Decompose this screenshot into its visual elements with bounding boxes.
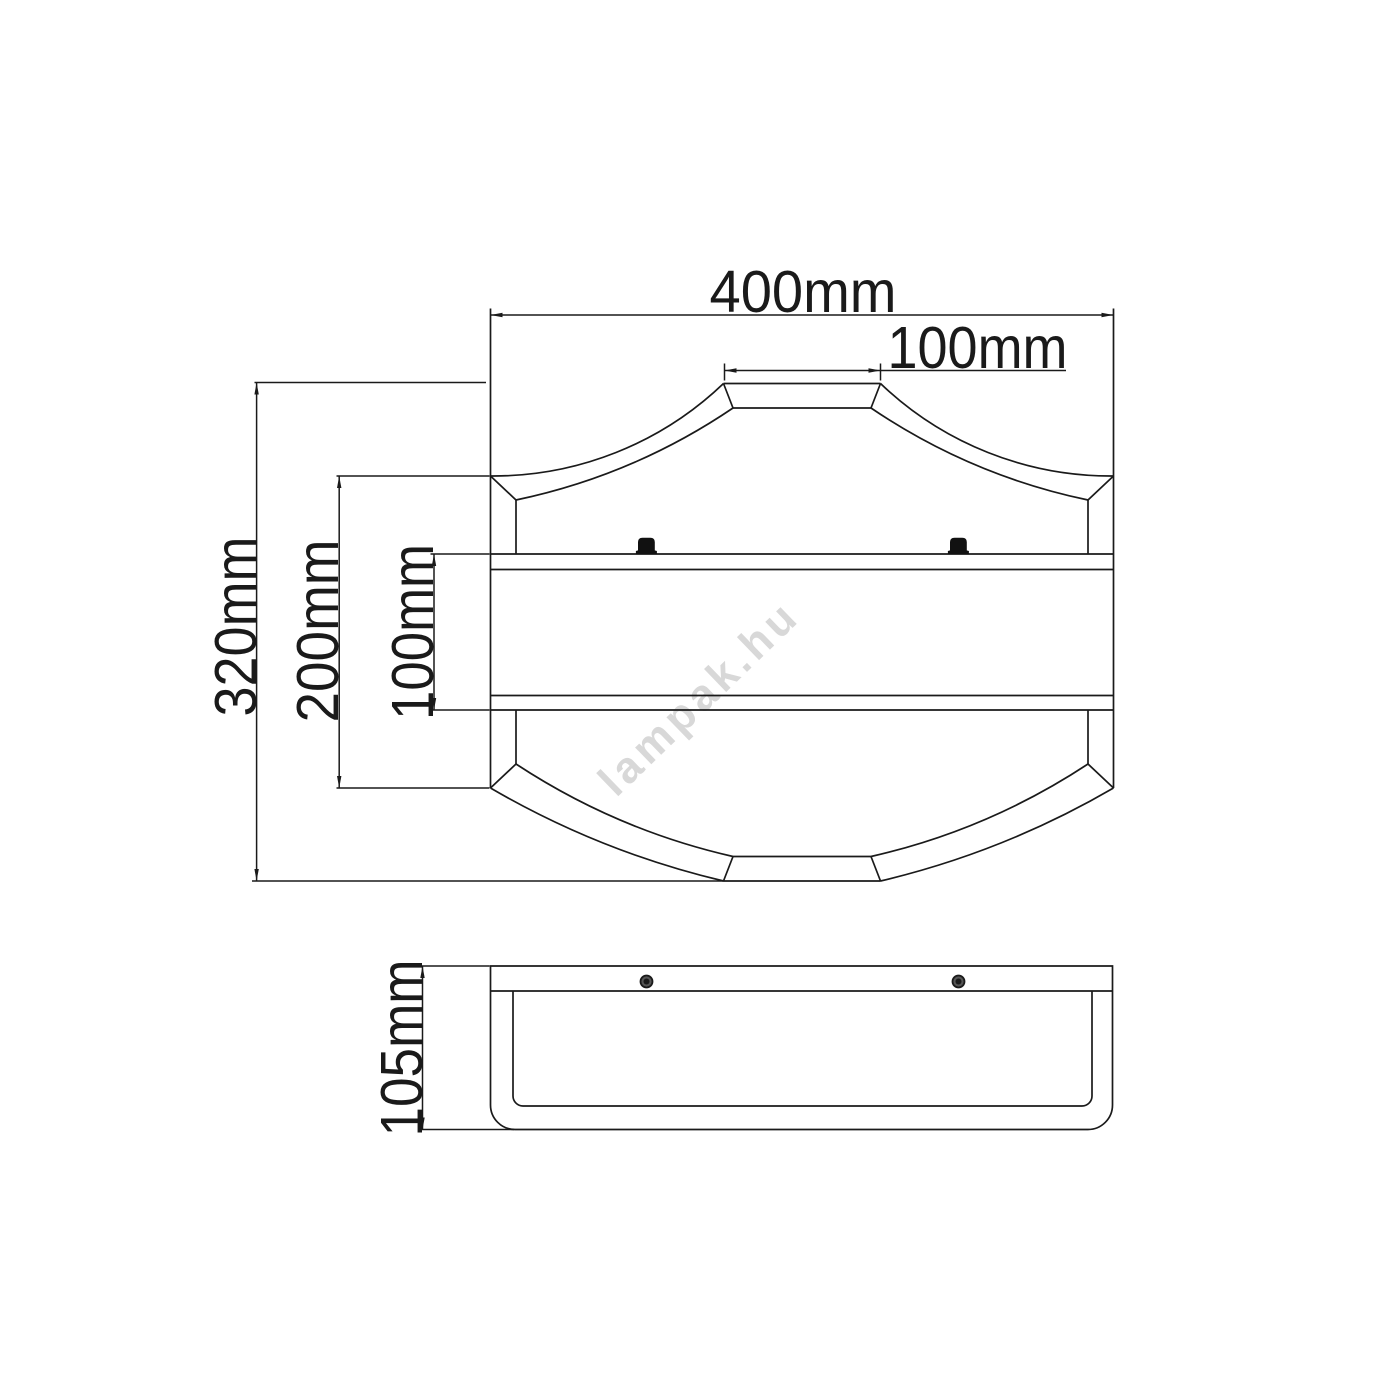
- svg-text:100mm: 100mm: [380, 544, 446, 720]
- svg-text:105mm: 105mm: [369, 960, 435, 1137]
- svg-text:lampak.hu: lampak.hu: [589, 594, 806, 806]
- svg-text:100mm: 100mm: [888, 315, 1068, 381]
- svg-text:400mm: 400mm: [710, 259, 897, 325]
- svg-text:200mm: 200mm: [285, 540, 351, 723]
- svg-text:320mm: 320mm: [203, 537, 269, 717]
